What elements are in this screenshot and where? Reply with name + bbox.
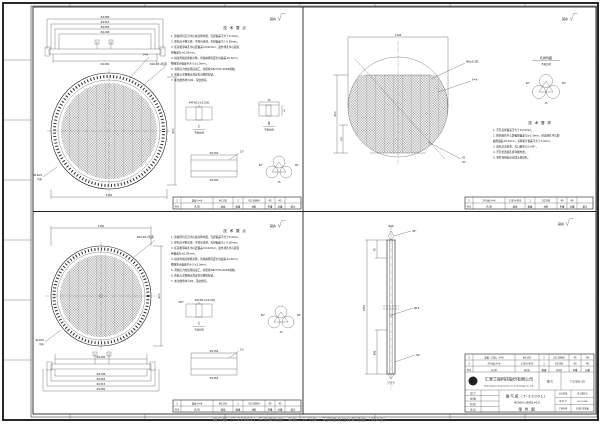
bom-cell: 筛板 δ=6 <box>192 402 203 406</box>
bom-header: 总重 <box>570 205 575 209</box>
dim-left-1: 950 <box>333 111 337 116</box>
note-line: 6. 筛板与支撑圈点焊定位后整体配钻。 <box>171 274 216 278</box>
note-line: 7. 未注倒角均为R2，锐边倒钝。 <box>171 279 209 283</box>
note-line: 1. 开孔直径偏差不大于±0.3mm。 <box>493 128 534 132</box>
quadrant-4-rod-and-title-block: 其余 Φ16 Φ16 30° 30° 1850 70 600 <box>303 212 596 414</box>
bom-header: 名 称 <box>194 205 200 209</box>
bom-header: 单重 <box>268 408 273 412</box>
angle-label: 60° <box>259 164 263 167</box>
q3-hole-pattern-detail: 60° 60° 15 <box>261 306 302 334</box>
bom-header: 数量 <box>236 408 241 412</box>
note-line: 7. 未注倒角均为R2，锐边倒钝。 <box>171 78 209 82</box>
leader-hole: Φ8±0.2孔 <box>466 60 479 64</box>
dim: Φ1262 <box>97 377 106 381</box>
pitch-label: 15 <box>279 331 283 334</box>
balloon-2: 2 <box>110 40 112 44</box>
drawing-title: 脱气塔（T-22001） Φ2000×28982×6-8 零 件 图 <box>506 394 548 412</box>
note-line: 1. 筛板所有孔沿中心线对称布置，孔距偏差不大于0.4mm。 <box>171 34 241 38</box>
bom-header: 总重 <box>278 205 283 209</box>
angle-label: 15° <box>240 151 244 154</box>
bom-header: 总重 <box>278 408 283 412</box>
q3-section-view: Φ1200 1 2 Φ1196 Φ1262 Φ1315 Φ1380 <box>43 352 159 391</box>
bom-cell: 升气板 δ=6 <box>483 199 496 203</box>
angle-label: 15° <box>240 349 244 352</box>
q1-section-view: Φ1380 Φ1315 Φ1262 Φ1196 1 2 Φ1200 <box>45 15 165 66</box>
dim: Φ1196 <box>101 30 110 34</box>
detail-subtitle: 不按比例 <box>194 131 204 135</box>
leader-holes-1: 40-Φ22 <box>33 174 42 177</box>
bom-cell: 2 <box>543 357 545 360</box>
dim: Φ1315 <box>101 20 110 24</box>
q2-technical-notes: 技 术 要 求 1. 开孔直径偏差不大于±0.3mm。 2. 相邻两孔中心距极限… <box>493 120 560 160</box>
angle-label: 60° <box>261 314 265 317</box>
note-line: 整圈累计偏差不大于±2.0mm。 <box>171 263 208 267</box>
note-line: 2. 筛孔应平整光滑、不得有毛刺，孔径偏差为＋0.38mm。 <box>171 241 240 245</box>
dim: Φ1150 <box>210 349 219 353</box>
bom-cell: 1 <box>543 363 545 366</box>
dim: Φ1380 <box>97 387 106 391</box>
note-line: 3. 任意相邻两孔中心距偏差±0.62mm，最外排孔中心圆直 <box>171 45 240 49</box>
bom-header: 名 称 <box>486 205 492 209</box>
bom-cell: 2 <box>468 200 470 203</box>
leader-holes-1: 40-Φ22 <box>35 339 44 342</box>
q3-technical-notes: 技 术 要 点 1. 筛板所有孔沿中心线对称布置，孔距偏差不大于0.4mm。 2… <box>171 228 247 283</box>
quadrant-3-sieve-plate-drawing: 其余 1150 900 940-Φ5.2孔距 40-Φ22 均布 Φ1200 <box>33 212 302 414</box>
bom-header: 总重 <box>585 368 590 372</box>
roughness-label: 其余 <box>270 16 276 21</box>
sign-label: 制 图 <box>470 397 476 401</box>
q2-hole-pattern-detail: 孔排列图 不按比例 60° 60° 15 <box>526 55 567 105</box>
note-line: 2. 相邻两孔中心距极限偏差为±0.3mm，任意两孔中心距 <box>493 134 560 138</box>
doc-no-value: T-22001-05 <box>570 380 585 384</box>
bom-header: 备注 <box>583 205 588 209</box>
bom-header: 件号 <box>175 205 180 209</box>
q1-bom-strip: 1 筛板 δ=6 Φ1150 1 0Cr18Ni9 45 45 件号 名 称 规… <box>173 197 301 209</box>
dim: Φ1262 <box>101 25 110 29</box>
bom-cell: 升气板 δ=6 <box>488 362 501 366</box>
dim: Φ1200 <box>210 178 219 182</box>
dim-full-length: 1850 <box>362 304 366 311</box>
bom-cell: 40 <box>573 363 577 366</box>
drawing-title-line1: 脱气塔（T-22001） <box>506 394 548 399</box>
q1-hole-pattern-detail: 60° 60° 15 <box>259 156 300 184</box>
q1-plan-view-circle: 1150 900 940-Φ5.2孔距 δ=6 40-Φ22 均布 <box>33 54 177 200</box>
detail-label: 940-Φ5.2±0.25孔 <box>195 298 216 302</box>
note-line: 6. 筛板与支撑圈点焊定位后整体配钻。 <box>171 73 216 77</box>
roughness-label: 其余 <box>558 221 564 226</box>
bom-cell: 1 <box>237 403 239 406</box>
bom-header: 规格 <box>221 408 226 412</box>
note-line: 极限偏差±0.6mm，对称累计偏差不大于1.0mm。 <box>493 139 552 143</box>
bom-cell: 0Cr18Ni9 <box>553 357 565 360</box>
dim: Φ1262 <box>210 376 219 380</box>
bom-cell: Q235B <box>542 200 550 203</box>
note-line: 4. 开孔位置按孔排列图布置。 <box>493 150 527 154</box>
bom-cell: Q235B <box>555 363 563 366</box>
engineering-drawing-sheet: 其余 Φ1380 Φ1315 Φ1262 Φ1196 1 2 Φ1200 <box>0 0 602 424</box>
bom-header: 材料 <box>252 205 257 209</box>
q3-detail-1: 150° 940-Φ5.2±0.25孔 Ⅰ 平面布置 <box>178 298 216 332</box>
bom-cell: 1 <box>237 200 239 203</box>
note-line: 4. 拼接焊缝应修磨平整，焊缝两侧孔距允许偏差±0.6mm， <box>171 56 240 60</box>
sign-label: 审 定 <box>470 408 476 412</box>
bom-cell: 40 <box>560 200 564 203</box>
bom-cell: 0Cr18Ni9 <box>248 403 260 406</box>
q3-bom-strip: 3 筛板 δ=6 Φ1150 1 0Cr18Ni9 45 45 件号 名 称 规… <box>173 400 301 412</box>
detail-label: 940-Φ5.2±0.25孔 <box>189 101 210 105</box>
bom-cell: 2 <box>468 363 470 366</box>
dim: Φ1150 <box>210 151 219 155</box>
bom-cell: 45 <box>268 200 272 203</box>
leader-holes-2: 均布 <box>37 177 42 181</box>
roughness-label: 其余 <box>562 16 568 21</box>
q1-section-detail: Φ1150 Φ1200 15° <box>191 151 244 183</box>
bom-cell: 筛板 δ=6 <box>192 199 203 203</box>
note-line: 1. 筛板所有孔沿中心线对称布置，孔距偏差不大于0.4mm。 <box>171 235 241 239</box>
detail-dim: 8 <box>284 110 286 113</box>
figure-caption: 脱气塔（T-22001）内件零件图：筛板、升气板、支撑圈及拉杆制造图（共4张） <box>0 417 602 423</box>
bom-header: 数量 <box>236 205 241 209</box>
quadrant-2-segment-plate-drawing: 其余 1192 950 300 Φ8±0.2孔 δ=6 R2 45° <box>303 7 596 210</box>
dim-height: 900 <box>157 293 161 298</box>
bom-header: 单重 <box>560 205 565 209</box>
angle-label: 60° <box>562 82 566 85</box>
bom-cell: 1 <box>176 200 178 203</box>
detail-subtitle: 不按比例 <box>541 62 551 66</box>
note-line: 整圈累计偏差不大于±2.0mm。 <box>171 62 208 66</box>
detail-title: Ⅰ <box>198 321 199 326</box>
dim-left-2: 300 <box>341 136 343 141</box>
bom-header: 数量 <box>528 205 533 209</box>
bom-cell: Φ1150 <box>219 403 227 406</box>
detail-title: Ⅰ <box>198 124 199 129</box>
title-block: 3 筛板（开孔）δ=6 Φ1150 2 0Cr18Ni9 45 90 2 升气板… <box>465 354 594 412</box>
bom-header: 备注 <box>291 205 296 209</box>
q2-plan-view: 1192 950 300 Φ8±0.2孔 δ=6 R2 45° <box>333 33 479 165</box>
pitch-label: 15 <box>544 102 548 105</box>
detail-title: 孔排列图 <box>540 55 552 60</box>
bom-cell: 1192×950 <box>521 363 534 366</box>
note-line: 径偏差为±0.05mm。 <box>171 51 197 55</box>
detail-subtitle: 平面布置 <box>194 328 204 332</box>
bom-cell: 45 <box>573 357 577 360</box>
leader-holes-2: 均布 <box>39 342 44 346</box>
roughness-symbol: 其余 <box>270 14 286 22</box>
bom-header: 规格 <box>513 205 518 209</box>
angle-label: 150° <box>178 301 184 304</box>
bom-cell: 40 <box>570 200 574 203</box>
q1-detail-1: 940-Φ5.2±0.25孔 Ⅰ 不按比例 <box>186 101 212 135</box>
bom-header: 单重 <box>268 205 273 209</box>
bom-cell: 3 <box>176 403 178 406</box>
roughness-symbol: 其余 <box>562 14 578 22</box>
drawing-title-line3: 零 件 图 <box>518 407 535 412</box>
bom-cell: Φ1150 <box>219 200 227 203</box>
info-value: 技改扩建装置 <box>576 407 588 411</box>
detail-dim: 24 <box>267 99 271 102</box>
note-line: 2. 筛孔应平整光滑、不得有毛刺，孔径偏差为＋0.38mm。 <box>171 40 240 44</box>
diameter-label: Φ16 <box>388 224 394 228</box>
leader-thickness: δ=6 <box>472 78 478 82</box>
q4-rod-part-view: Φ16 Φ16 30° 30° 1850 70 600 <box>362 224 421 390</box>
bom-cell: 3 <box>468 357 470 360</box>
dim-bottom-segment: 600 <box>374 350 377 355</box>
pitch-label: 15 <box>277 181 281 184</box>
bom-header: 数量 <box>542 368 547 372</box>
bom-header: 名 称 <box>194 408 200 412</box>
sign-label: 校 核 <box>470 402 476 406</box>
leader-pitch: 940-Φ5.2孔距 <box>150 62 168 66</box>
bom-header: 件号 <box>467 368 472 372</box>
info-value: 施工图设计 <box>577 392 587 396</box>
note-line: 5. 消除应力热处理后加工，材质按GB/T700-2006验收。 <box>171 67 237 71</box>
leader-angle: 45° <box>462 161 466 164</box>
q1-detail-2: 24 8 Ⅱ 不按比例 <box>259 99 286 132</box>
info-label: 工程名称 <box>559 407 567 411</box>
detail-subtitle: 不按比例 <box>264 128 274 132</box>
title-block-info-rows: 设计阶段 施工图设计 项 目 号 HL23-046 工程名称 技改扩建装置 <box>559 392 589 411</box>
bom-header: 备注 <box>291 408 296 412</box>
angle-label: 60° <box>295 164 299 167</box>
bom-header: 规格 <box>221 205 226 209</box>
q3-section-detail: Φ1150 Φ1262 15° <box>191 349 244 381</box>
bom-cell: 1 <box>529 200 531 203</box>
note-line: 5. 消除应力热处理后加工，材质按GB/T700-2006验收。 <box>171 268 237 272</box>
bom-header: 规 格 <box>524 368 530 372</box>
leader-thickness: δ=6 <box>143 54 148 57</box>
note-line: 3. 钻孔后去毛刺，孔口倒角0.5×45°。 <box>493 145 538 149</box>
notes-title: 技 术 要 求 <box>528 120 551 125</box>
note-line: 4. 拼接焊缝应修磨平整，焊缝两侧孔距允许偏差±0.6mm， <box>171 257 240 261</box>
bom-cell: 45 <box>268 403 272 406</box>
company-name-cn: 汇里工程科技股份有限公司 <box>485 376 533 382</box>
dim: Φ1196 <box>97 372 106 376</box>
dim: Φ1315 <box>97 382 106 386</box>
note-line: 径偏差为±0.05mm。 <box>171 252 197 256</box>
roughness-label: 其余 <box>270 223 276 228</box>
bom-header: 材料 <box>544 205 549 209</box>
note-line: 3. 任意相邻两孔中心距偏差±0.62mm，最外排孔中心圆直 <box>171 246 240 250</box>
signature-rows: 设 计 制 图 校 核 审 定 <box>470 391 476 412</box>
dim: Φ1380 <box>101 15 110 19</box>
q3-plan-view-circle: 1150 900 940-Φ5.2孔距 40-Φ22 均布 <box>35 224 163 350</box>
bom-cell: 40 <box>586 363 590 366</box>
quadrant-1-sieve-plate-drawing: 其余 Φ1380 Φ1315 Φ1262 Φ1196 1 2 Φ1200 <box>33 7 302 210</box>
bom-cell: 45 <box>278 403 282 406</box>
angle-label: 60° <box>297 314 301 317</box>
bom-cell: 0Cr18Ni9 <box>248 200 260 203</box>
chamfer-label: 30° <box>416 353 421 357</box>
doc-no-label: 图 号 <box>547 380 553 384</box>
bom-header: 材料 <box>252 408 257 412</box>
dim-top: 1192 <box>395 33 402 37</box>
dim-top-segment: 70 <box>374 248 377 252</box>
balloon-1: 1 <box>96 40 98 44</box>
roughness-symbol: 其余 <box>270 221 286 229</box>
q1-technical-notes: 技 术 要 点 1. 筛板所有孔沿中心线对称布置，孔距偏差不大于0.4mm。 2… <box>171 25 247 82</box>
company-logo-letter: 汇 <box>471 378 474 383</box>
balloon-2: 2 <box>108 352 110 356</box>
drawing-title-line2: Φ2000×28982×6-8 <box>514 401 540 405</box>
bom-header: 单重 <box>573 368 578 372</box>
company-band: 汇 汇里工程科技股份有限公司 Huili Engineering Science… <box>469 376 586 388</box>
main-bom-table: 3 筛板（开孔）δ=6 Φ1150 2 0Cr18Ni9 45 90 2 升气板… <box>467 356 591 372</box>
dim-height: 900 <box>171 128 175 133</box>
company-name-en: Huili Engineering Science & Technology C… <box>484 385 534 388</box>
leader-pitch: 940-Φ5.2孔距 <box>137 235 155 239</box>
diameter-label: Φ16 <box>414 306 420 310</box>
bom-cell: 90 <box>586 357 590 360</box>
bom-header: 件号 <box>467 205 472 209</box>
dim: Φ1200 <box>101 62 110 66</box>
note-line: 5. 零件卷制前应完成全部钻孔。 <box>493 156 530 160</box>
sign-label: 设 计 <box>470 391 476 395</box>
bom-header: 件号 <box>175 408 180 412</box>
bom-header: 材 料 <box>556 368 562 372</box>
bom-cell: 45 <box>278 200 282 203</box>
info-label: 设计阶段 <box>559 392 567 396</box>
q2-bom-strip: 2 升气板 δ=6 1192×950 1 Q235B 40 40 件号 名 称 … <box>465 197 593 209</box>
angle-label: 60° <box>526 82 530 85</box>
notes-title: 技 术 要 点 <box>223 228 246 233</box>
bom-cell: Φ1150 <box>523 357 531 360</box>
roughness-symbol: 其余 <box>558 219 574 227</box>
dim: Φ1200 <box>97 355 106 359</box>
detail-title: Ⅱ <box>268 121 270 126</box>
dim-width: 1150 <box>106 193 113 197</box>
info-label: 项 目 号 <box>559 399 567 403</box>
chamfer-label: 30° <box>412 229 417 233</box>
bom-header: 名 称 <box>491 368 497 372</box>
notes-title: 技 术 要 点 <box>223 25 246 30</box>
leader-radius: R2 <box>462 157 466 160</box>
dim-width: 1150 <box>98 224 105 228</box>
bom-cell: 1192×950 <box>509 200 522 203</box>
info-value: HL23-046 <box>577 401 588 403</box>
bom-cell: 筛板（开孔）δ=6 <box>484 356 504 360</box>
